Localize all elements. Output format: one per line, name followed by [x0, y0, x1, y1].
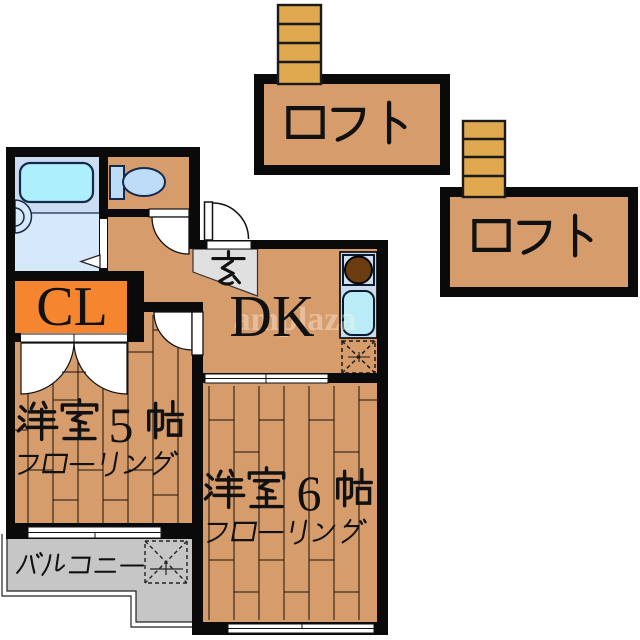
svg-text:CL: CL: [36, 276, 108, 338]
svg-text:6: 6: [297, 465, 322, 521]
svg-text:5: 5: [109, 397, 134, 453]
svg-text:DK: DK: [229, 283, 314, 349]
